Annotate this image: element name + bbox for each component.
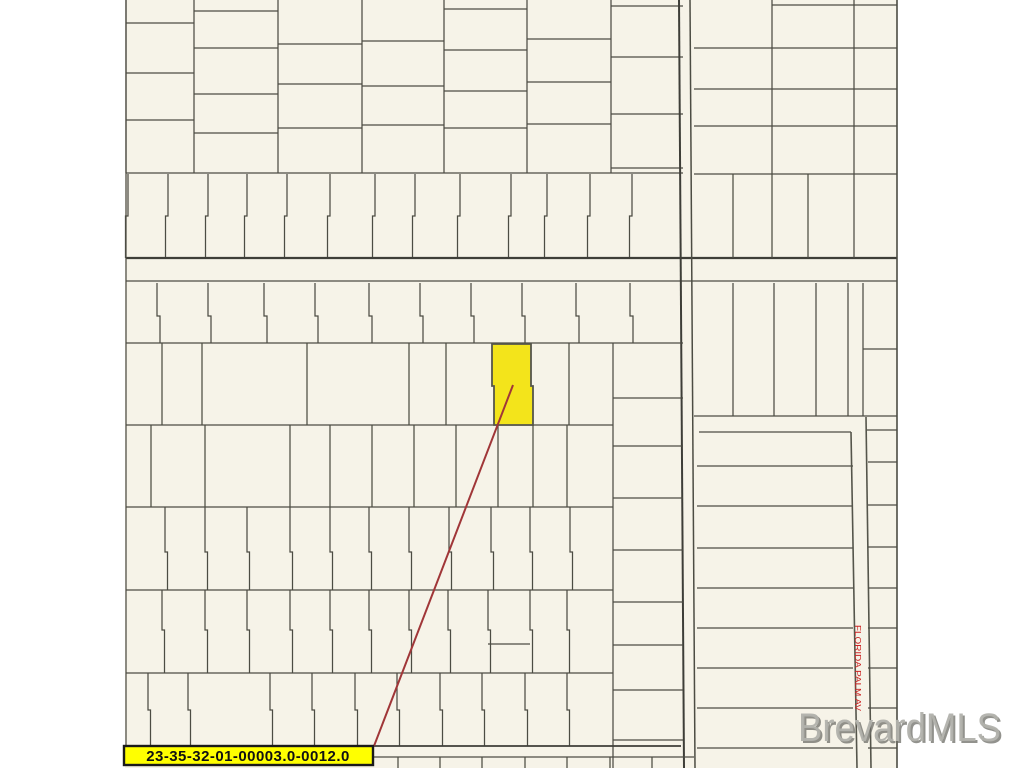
svg-text:FLORIDA PALM AV: FLORIDA PALM AV (853, 625, 863, 711)
svg-text:BrevardMLS: BrevardMLS (798, 706, 1001, 750)
svg-text:23-35-32-01-00003.0-0012.0: 23-35-32-01-00003.0-0012.0 (146, 748, 350, 765)
